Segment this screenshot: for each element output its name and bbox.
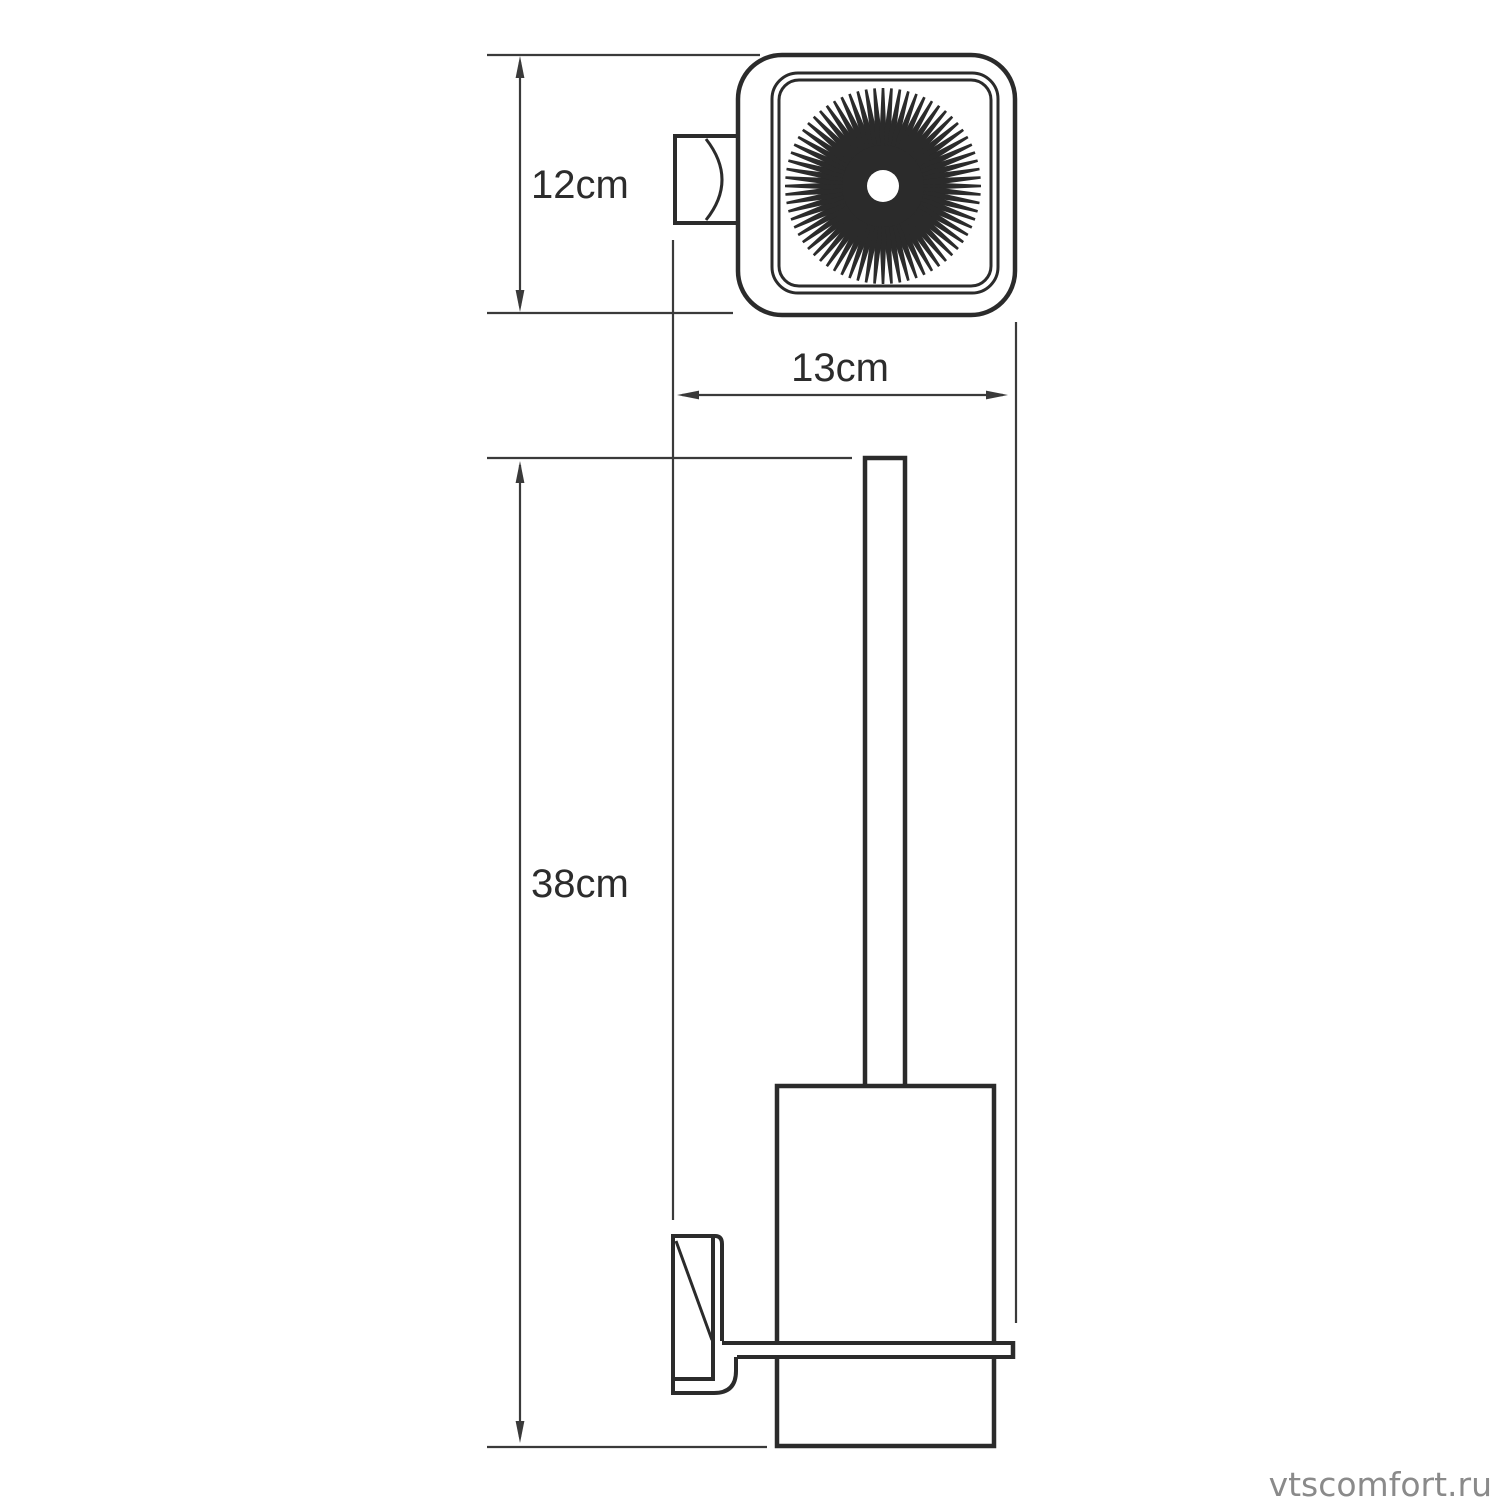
brush-handle <box>865 458 905 1090</box>
dimension-label-13cm: 13cm <box>791 346 889 390</box>
arrowhead-down <box>516 290 525 312</box>
wall-bracket-plate <box>673 1236 713 1379</box>
technical-drawing-canvas: 12cm 13cm 38cm <box>0 0 1503 1504</box>
wall-bracket-top-view <box>675 136 738 223</box>
arrowhead-up <box>516 461 525 483</box>
drawing-svg: 12cm 13cm 38cm <box>0 0 1503 1504</box>
watermark: vtscomfort.ru <box>1269 1465 1492 1504</box>
handle-center-dot <box>867 170 899 202</box>
dimension-label-38cm: 38cm <box>531 862 629 906</box>
arrowhead-left <box>677 391 699 400</box>
arrowhead-up <box>516 56 525 78</box>
dimension-label-12cm: 12cm <box>531 163 629 207</box>
top-view <box>675 55 1015 315</box>
holder-arm-fill <box>724 1345 1013 1355</box>
arrowhead-down <box>516 1421 525 1443</box>
glass-cup <box>777 1086 994 1446</box>
arrowhead-right <box>986 391 1008 400</box>
starburst-icon <box>785 88 981 284</box>
front-view <box>673 458 1013 1446</box>
